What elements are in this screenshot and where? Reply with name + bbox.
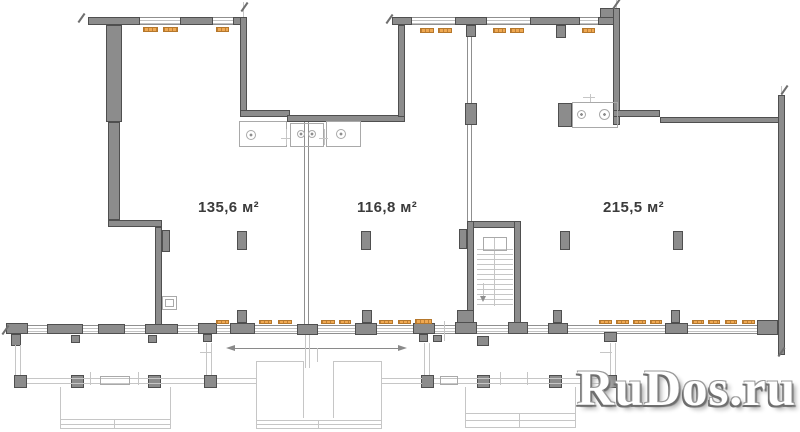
wall-segment <box>660 117 780 123</box>
window <box>28 325 47 334</box>
pilaster <box>355 323 377 335</box>
pilaster <box>297 324 318 335</box>
pilaster <box>433 335 442 342</box>
fixture-circle <box>599 109 610 120</box>
room-area-label: 116,8 м² <box>357 199 417 216</box>
pilaster <box>548 323 568 334</box>
pilaster <box>671 310 680 323</box>
railing-line <box>206 343 207 375</box>
railing-line <box>90 372 91 385</box>
railing-line <box>15 345 16 375</box>
step-line <box>60 424 171 425</box>
radiator <box>216 27 229 32</box>
radiator <box>742 320 755 324</box>
window <box>125 325 145 334</box>
pilaster <box>98 324 125 334</box>
partition-wall <box>304 122 309 325</box>
wall-segment <box>613 110 660 117</box>
step-line <box>170 387 171 428</box>
pilaster <box>455 322 477 334</box>
terrace-column <box>421 375 434 388</box>
radiator <box>143 27 158 32</box>
terrace-column <box>71 375 84 388</box>
pilaster <box>71 335 80 343</box>
window <box>487 17 530 25</box>
staircase-wall <box>459 229 467 249</box>
railing-line <box>217 378 257 379</box>
window <box>435 325 457 334</box>
railing-line <box>600 352 612 353</box>
stair-down-arrow-icon <box>480 296 486 302</box>
radiator <box>616 320 629 324</box>
stair-down-arrow-icon <box>483 283 484 297</box>
step-line <box>256 361 257 428</box>
radiator <box>321 320 335 324</box>
radiator <box>493 28 506 33</box>
railing-line <box>500 372 501 385</box>
step-line <box>465 420 576 421</box>
step-line <box>465 413 576 414</box>
fixture-circle <box>308 130 316 138</box>
wall-segment <box>155 227 162 325</box>
dimension-arrow-left-icon <box>226 345 235 351</box>
window <box>412 17 455 25</box>
radiator <box>379 320 393 324</box>
wall-segment <box>106 25 122 122</box>
railing-line <box>200 352 212 353</box>
wall-segment <box>455 17 487 25</box>
radiator <box>725 320 737 324</box>
pilaster <box>145 324 178 334</box>
pilaster <box>47 324 83 334</box>
step-line <box>381 361 382 428</box>
step-line <box>333 361 382 362</box>
radiator <box>633 320 646 324</box>
railing-line <box>429 343 430 375</box>
dimension-arrow-right-icon <box>398 345 407 351</box>
step-line <box>60 428 171 429</box>
window <box>688 325 757 334</box>
pilaster <box>477 336 489 346</box>
separator-tick <box>590 94 591 102</box>
partition-wall <box>467 37 472 221</box>
panel-marker <box>165 299 174 307</box>
step-line <box>465 427 576 428</box>
step-line <box>256 420 382 421</box>
window-mullion <box>444 321 445 341</box>
railing-line <box>424 343 425 375</box>
window <box>377 325 413 334</box>
separator-tick <box>319 138 328 139</box>
bathroom-fixture-outline <box>290 123 324 147</box>
window <box>178 325 198 334</box>
radiator <box>420 28 434 33</box>
radiator <box>216 320 229 324</box>
railing-line <box>440 376 458 385</box>
railing-line <box>20 345 21 375</box>
wall-segment <box>180 17 213 25</box>
wall-segment <box>530 17 580 25</box>
window <box>580 17 598 25</box>
pilaster <box>198 323 217 334</box>
separator-tick <box>324 129 325 145</box>
wall-segment <box>757 320 778 335</box>
fixture-circle <box>297 130 305 138</box>
watermark-logo: RuDos.ru <box>577 360 796 418</box>
railing-line <box>211 343 212 375</box>
window <box>83 325 98 334</box>
radiator <box>582 28 595 33</box>
staircase-wall <box>467 221 521 228</box>
step-line <box>519 413 520 428</box>
railing-line <box>381 378 422 379</box>
wall-segment <box>108 122 120 220</box>
pilaster <box>419 334 428 342</box>
radiator <box>398 320 411 324</box>
wall-segment <box>398 25 405 117</box>
pilaster <box>508 322 528 334</box>
step-line <box>60 419 171 420</box>
radiator <box>599 320 612 324</box>
wall-segment <box>598 17 614 25</box>
window <box>140 17 180 25</box>
terrace-column <box>14 375 27 388</box>
wall-segment <box>466 25 476 37</box>
wall-segment <box>556 25 566 38</box>
wall-segment <box>600 8 614 18</box>
wall-segment <box>108 220 162 227</box>
railing-line <box>381 383 422 384</box>
room-area-label: 135,6 м² <box>198 199 259 216</box>
separator-tick <box>286 129 287 145</box>
wall-segment <box>778 95 785 355</box>
staircase-wall <box>514 221 521 325</box>
pilaster <box>362 310 372 323</box>
pilaster <box>604 332 617 342</box>
fixture-circle <box>577 110 586 119</box>
pilaster <box>230 323 255 334</box>
floor-plan: 135,6 м² 116,8 м² 215,5 м² RuDos.ru <box>0 0 800 432</box>
railing-line <box>138 372 139 385</box>
wall-segment <box>162 230 170 252</box>
railing-line <box>217 383 257 384</box>
wall-segment <box>88 17 140 25</box>
pilaster <box>665 323 688 334</box>
pilaster <box>361 231 371 250</box>
window <box>213 17 233 25</box>
fixture-circle <box>246 130 256 140</box>
pilaster <box>148 335 157 343</box>
step-line <box>256 424 382 425</box>
radiator <box>163 27 178 32</box>
radiator <box>415 319 432 324</box>
pilaster <box>560 231 570 250</box>
wall-segment <box>392 17 412 25</box>
radiator <box>438 28 452 33</box>
radiator <box>650 320 662 324</box>
terrace-column <box>549 375 562 388</box>
radiator <box>278 320 292 324</box>
radiator <box>708 320 720 324</box>
step-line <box>114 419 115 429</box>
railing-line <box>100 376 130 385</box>
fixture-circle <box>336 129 346 139</box>
step-line <box>575 387 576 428</box>
pilaster <box>6 323 28 334</box>
pilaster <box>413 323 435 334</box>
separator-tick <box>281 138 290 139</box>
step-line <box>318 420 319 429</box>
center-tick <box>317 348 318 362</box>
railing-line <box>527 372 528 385</box>
room-area-label: 215,5 м² <box>603 199 664 216</box>
terrace-column <box>204 375 217 388</box>
center-tick <box>309 335 310 368</box>
pilaster <box>237 310 247 323</box>
radiator <box>510 28 524 33</box>
separator-tick <box>583 97 595 98</box>
pilaster <box>673 231 683 250</box>
step-line <box>256 361 304 362</box>
step-line <box>256 428 382 429</box>
wall-segment <box>240 110 290 117</box>
window <box>528 325 548 334</box>
wall-break-mark <box>241 2 249 12</box>
step-line <box>60 387 61 428</box>
step-line <box>333 361 334 418</box>
window <box>217 325 230 334</box>
pilaster <box>553 310 562 323</box>
terrace-column <box>148 375 161 388</box>
step-line <box>303 361 304 418</box>
window <box>318 325 355 334</box>
stair-landing-outline <box>483 237 507 251</box>
pilaster <box>237 231 247 250</box>
terrace-column <box>477 375 490 388</box>
pilaster <box>465 103 477 125</box>
radiator <box>259 320 272 324</box>
window <box>474 325 508 334</box>
radiator <box>339 320 351 324</box>
radiator <box>692 320 704 324</box>
window <box>255 325 297 334</box>
center-tick <box>305 335 306 368</box>
pilaster <box>203 334 212 342</box>
wall-stub <box>558 103 572 127</box>
step-line <box>465 387 466 428</box>
wall-segment <box>240 17 247 112</box>
wall-break-mark <box>78 13 86 23</box>
